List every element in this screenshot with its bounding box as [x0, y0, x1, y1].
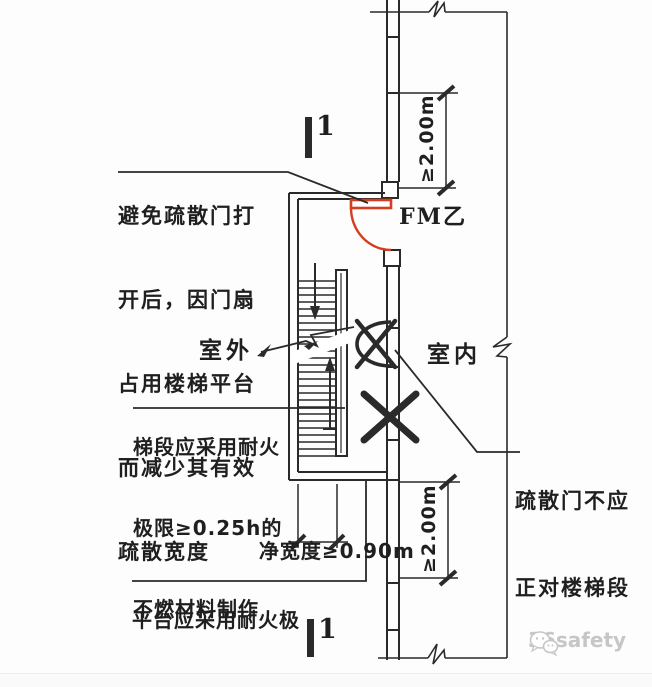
- break-symbol-top: [429, 1, 445, 17]
- annotation-door-not-facing: 疏散门不应 正对楼梯段: [515, 429, 630, 661]
- dimension-clear-width-text: 净宽度≥0.90m: [227, 511, 415, 588]
- section-number-bottom: 1: [318, 614, 337, 645]
- door-jamb-top: [382, 182, 398, 198]
- label-indoor: 室内: [427, 335, 481, 369]
- dimension-text-top: ≥2.00m: [416, 99, 438, 183]
- annotation-line: 正对楼梯段: [515, 574, 630, 603]
- watermark: 36safety: [528, 628, 626, 652]
- label-outdoor: 室外: [199, 331, 253, 365]
- dimension-text-bottom: ≥2.00m: [418, 489, 440, 573]
- door-jamb-bottom: [384, 250, 400, 266]
- page-divider: [0, 673, 652, 687]
- fire-door-tag: FM乙: [399, 199, 467, 231]
- break-symbol-bottom: [428, 644, 445, 664]
- door-leaf: [351, 200, 391, 208]
- evacuation-door: [351, 200, 391, 250]
- annotation-line: 梯段应采用耐火: [133, 434, 282, 461]
- clear-width-label: 净宽度: [259, 539, 322, 563]
- stair-evacuation-diagram: 避免疏散门打 开后，因门扇 占用楼梯平台 而减少其有效 疏散宽度 梯段应采用耐火…: [0, 0, 652, 687]
- annotation-line: 平台应采用耐火极: [132, 607, 323, 634]
- door-swing-arc: [351, 208, 391, 250]
- clear-width-value: ≥0.90m: [322, 539, 415, 563]
- break-symbol-right: [493, 337, 510, 357]
- annotation-line: 避免疏散门打: [118, 202, 256, 230]
- wechat-icon: [528, 628, 560, 658]
- annotation-line: 疏散门不应: [515, 487, 630, 516]
- annotation-line: 开后，因门扇: [118, 286, 256, 314]
- section-mark-top: [305, 117, 312, 158]
- section-number-top: 1: [316, 111, 335, 142]
